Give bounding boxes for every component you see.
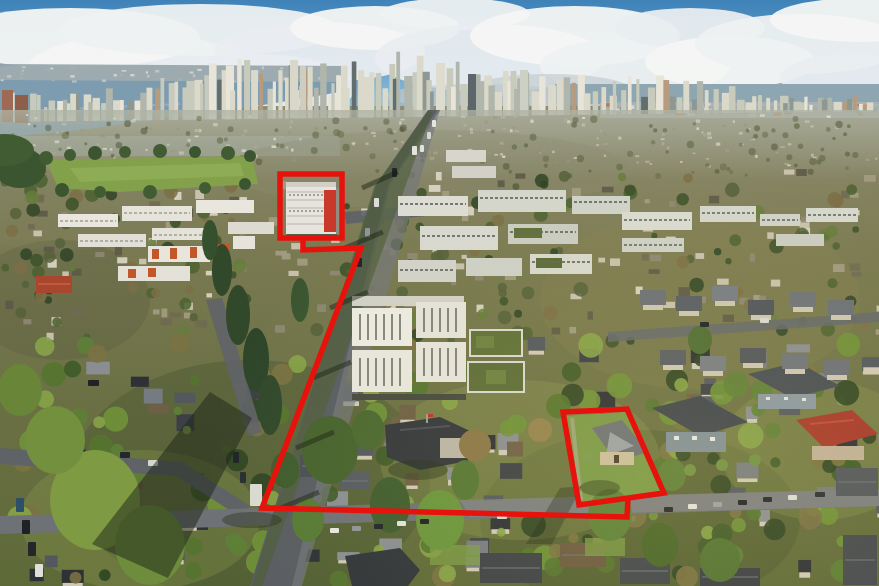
aerial-photo-stage <box>0 0 879 586</box>
warm-light-overlay <box>0 0 879 586</box>
aerial-photo <box>0 0 879 586</box>
